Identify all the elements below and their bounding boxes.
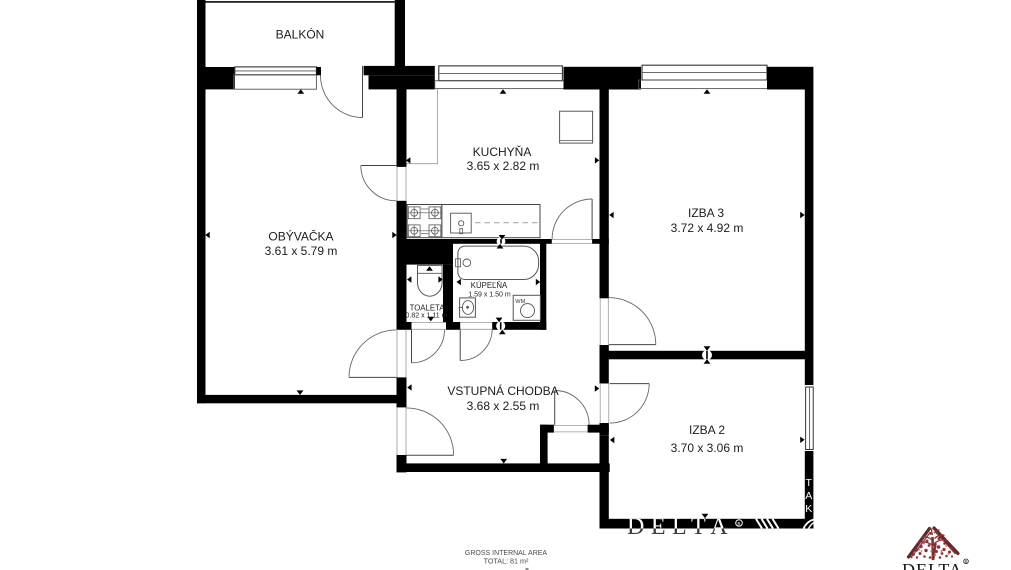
svg-text:K: K [805, 503, 812, 515]
svg-text:TOTAL: 81 m²: TOTAL: 81 m² [484, 557, 529, 566]
svg-text:1.59 x 1.50 m: 1.59 x 1.50 m [468, 291, 511, 298]
svg-text:A: A [805, 490, 812, 502]
svg-text:3.70 x 3.06 m: 3.70 x 3.06 m [671, 441, 744, 455]
svg-text:OBÝVAČKA: OBÝVAČKA [268, 228, 333, 243]
svg-text:T: T [805, 477, 812, 489]
svg-text:3.61 x 5.79 m: 3.61 x 5.79 m [265, 244, 338, 258]
svg-text:KUCHYŇA: KUCHYŇA [473, 144, 532, 159]
svg-text:R: R [965, 559, 968, 564]
svg-text:KÚPEĽŇA: KÚPEĽŇA [471, 281, 508, 290]
svg-text:VSTUPNÁ CHODBA: VSTUPNÁ CHODBA [447, 383, 558, 398]
svg-text:3.65 x 2.82 m: 3.65 x 2.82 m [467, 159, 540, 173]
svg-text:3.68 x 2.55 m: 3.68 x 2.55 m [467, 399, 540, 413]
svg-text:BALKÓN: BALKÓN [276, 26, 325, 41]
svg-text:IZBA 2: IZBA 2 [689, 423, 725, 437]
svg-text:TOALETA: TOALETA [410, 303, 446, 312]
svg-text:IZBA 3: IZBA 3 [688, 206, 724, 220]
svg-text:DELTA: DELTA [902, 560, 963, 570]
svg-text:3.72 x 4.92 m: 3.72 x 4.92 m [671, 221, 744, 235]
svg-text:0.82 x 1.11 m: 0.82 x 1.11 m [406, 312, 448, 319]
svg-text:R: R [737, 521, 741, 527]
